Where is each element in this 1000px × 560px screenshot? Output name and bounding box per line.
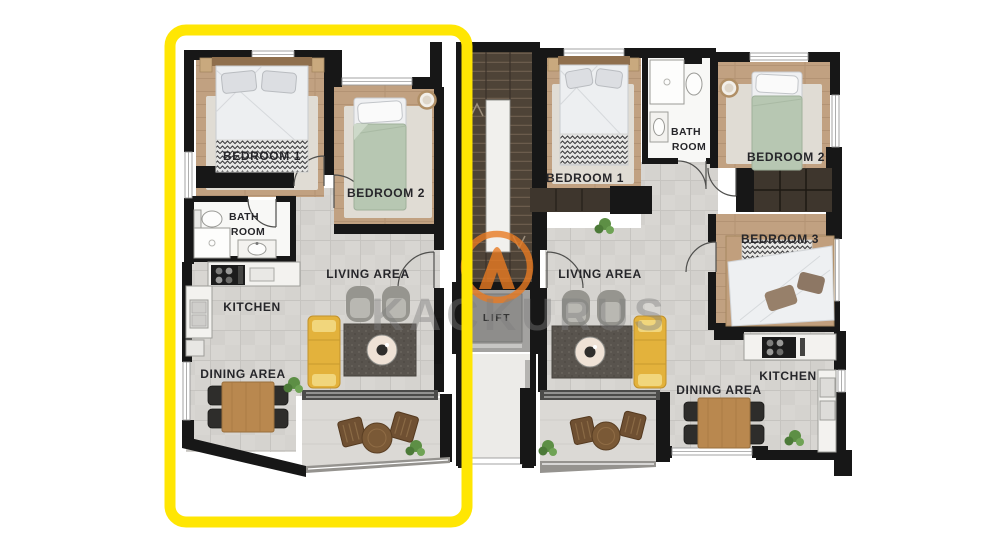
- sofa-pillow: [312, 374, 336, 386]
- right-bathroom-label-line1: BATH: [671, 126, 701, 138]
- right-bedroom1-double-bed: [548, 56, 639, 165]
- stove-panel: [800, 338, 805, 356]
- pillow: [221, 70, 257, 93]
- left-round-mirror: [419, 92, 436, 109]
- balcony-table: [362, 423, 392, 453]
- headboard: [558, 56, 630, 65]
- left-kitchen-label: KITCHEN: [223, 300, 281, 314]
- hall-entry-window: [470, 458, 522, 464]
- toilet-tank: [194, 210, 201, 228]
- right-bedroom1-label: BEDROOM 1: [546, 171, 624, 185]
- floor-plan-canvas: LIFT: [0, 0, 1000, 560]
- wardrobe: [530, 188, 610, 212]
- pillow: [261, 71, 297, 94]
- balcony-table: [592, 422, 620, 450]
- sofa-pillow: [638, 374, 662, 386]
- left-balcony-slider-door: [302, 390, 438, 400]
- left-bathroom-label-line2: ROOM: [231, 226, 265, 238]
- left-dining-label: DINING AREA: [200, 367, 286, 381]
- faucet-icon: [256, 242, 259, 245]
- sink-basin: [820, 401, 835, 420]
- left-unit: BEDROOM 1 BEDROOM 2 BATH ROOM KITCHEN LI…: [182, 42, 452, 477]
- left-bedroom2-label: BEDROOM 2: [347, 186, 425, 200]
- pillow: [357, 100, 402, 123]
- right-bedroom3-label: BEDROOM 3: [741, 232, 819, 246]
- toilet: [202, 211, 222, 227]
- left-bathroom-label-line1: BATH: [229, 211, 259, 223]
- stair-landing: [486, 100, 510, 252]
- pillow: [756, 74, 799, 94]
- sink-basin: [820, 378, 835, 397]
- nightstand: [548, 58, 559, 71]
- knit-blanket: [560, 134, 628, 164]
- right-balcony-slider-door: [540, 390, 660, 400]
- watermark-text: KACKURUS: [371, 289, 669, 340]
- pillow: [595, 68, 623, 88]
- right-living-label: LIVING AREA: [558, 267, 642, 281]
- headboard: [212, 57, 312, 66]
- floor-plan-image: LIFT: [0, 0, 1000, 560]
- counter-sink: [250, 268, 274, 281]
- shower: [650, 60, 684, 104]
- shower: [194, 228, 230, 258]
- sink: [654, 119, 665, 136]
- nightstand: [200, 58, 212, 72]
- right-dining-label: DINING AREA: [676, 383, 762, 397]
- stove-panel: [238, 266, 243, 284]
- nightstand: [312, 58, 324, 72]
- armchair-seat: [350, 298, 370, 318]
- sofa-pillow: [312, 320, 336, 332]
- dining-table: [698, 398, 750, 448]
- lift-door: [470, 344, 522, 348]
- right-bedroom2-label: BEDROOM 2: [747, 150, 825, 164]
- left-living-label: LIVING AREA: [326, 267, 410, 281]
- right-round-mirror: [721, 80, 738, 97]
- right-kitchen-label: KITCHEN: [759, 369, 817, 383]
- right-bedroom3-double-bed: [726, 236, 834, 326]
- right-unit: BEDROOM 1 BEDROOM 2 BEDROOM 3 BATH ROOM …: [520, 48, 852, 476]
- toilet: [686, 73, 702, 95]
- right-bathroom-label-line2: ROOM: [672, 141, 706, 153]
- appliance: [186, 340, 204, 356]
- dining-table: [222, 382, 274, 432]
- left-bedroom1-label: BEDROOM 1: [223, 149, 301, 163]
